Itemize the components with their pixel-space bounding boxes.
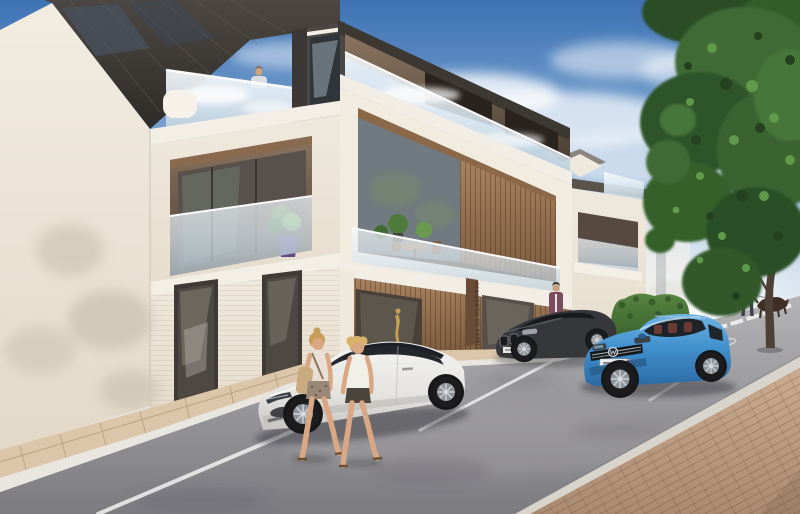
mirror [638,333,646,338]
vw-badge [609,348,618,357]
entrance-door-left [174,279,218,406]
handrail-cap [163,90,197,118]
wheel [511,336,538,363]
architectural-render: RESIDENTIE DE KAPELLE [0,0,800,514]
wheel [283,394,323,434]
wheel [695,350,727,382]
wheel [428,374,464,410]
vertical-sign-text: RESIDENTIE DE KAPELLE [473,282,480,354]
wheel [601,360,639,398]
